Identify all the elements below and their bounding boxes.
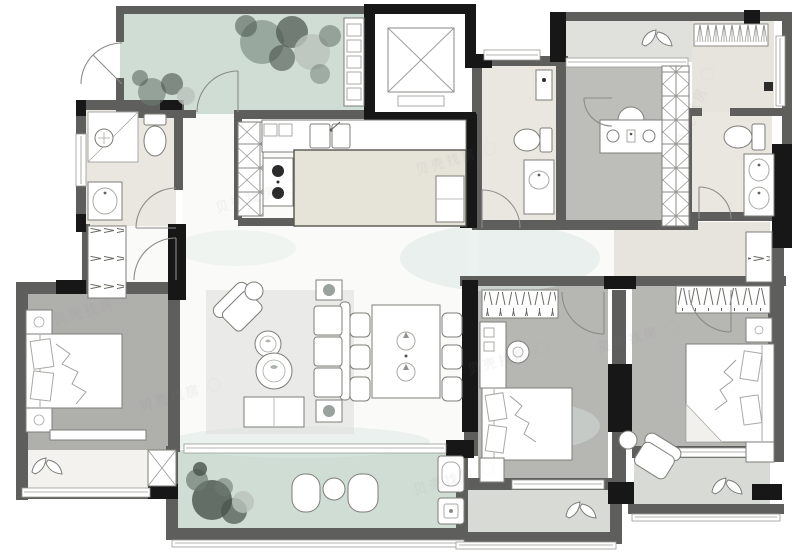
nightstand [746, 318, 772, 342]
room-dining [350, 305, 462, 401]
elevator-sill [398, 96, 444, 106]
tall-wardrobe [662, 66, 689, 226]
side-table [245, 282, 263, 300]
floor-wash [176, 230, 296, 266]
stove-burners-icon [263, 158, 293, 206]
island-cabinet [436, 176, 464, 222]
sofa-side-table [316, 400, 342, 422]
shoe-cabinet [344, 18, 364, 106]
entry-gate-door [81, 43, 122, 84]
vanity-basin [524, 160, 554, 214]
master-baywindow-sill [26, 450, 150, 490]
dining-table [372, 305, 440, 398]
floorplan-image: 贝壳找房 ◯贝壳找房 ◯贝壳找房 ◯贝壳找房 ◯贝壳找房 ◯贝壳找房 ◯贝壳找房… [0, 0, 800, 555]
elevator-x-icon [388, 28, 454, 92]
toilet-icon [514, 128, 552, 152]
nightstand [480, 458, 504, 482]
utility-fixtures [438, 456, 464, 524]
foyer-wardrobe [88, 226, 126, 298]
nightstand [26, 408, 52, 432]
desk [600, 120, 662, 153]
kitchen-counter [262, 120, 466, 152]
shower-icon [88, 112, 138, 162]
vanity-double-basin [744, 154, 774, 216]
bed [26, 334, 122, 408]
corner-column-x-icon [148, 450, 176, 486]
stool [507, 341, 529, 363]
counter-appliance [264, 124, 277, 136]
toilet-icon [724, 124, 765, 150]
counter-appliance [279, 124, 292, 136]
washbasin-icon [88, 182, 122, 220]
nightstand [26, 310, 52, 334]
tall-cabinet [238, 122, 263, 216]
sink-icon [310, 122, 350, 148]
bed-bench [50, 430, 146, 440]
wall-basin-icon [536, 70, 552, 100]
sofa-side-table [316, 280, 342, 300]
toilet-icon [144, 114, 166, 156]
floorplan-svg [0, 0, 800, 555]
sofa [314, 302, 350, 400]
bed [482, 388, 572, 460]
bed [686, 344, 774, 442]
round-table [323, 478, 345, 500]
wardrobe [482, 290, 558, 318]
dressing-wardrobe [746, 232, 772, 282]
nightstand [746, 442, 774, 462]
side-table [619, 431, 637, 449]
wall-fixture-icon [764, 82, 773, 91]
bench [244, 397, 304, 427]
foyer-floor [182, 114, 238, 230]
